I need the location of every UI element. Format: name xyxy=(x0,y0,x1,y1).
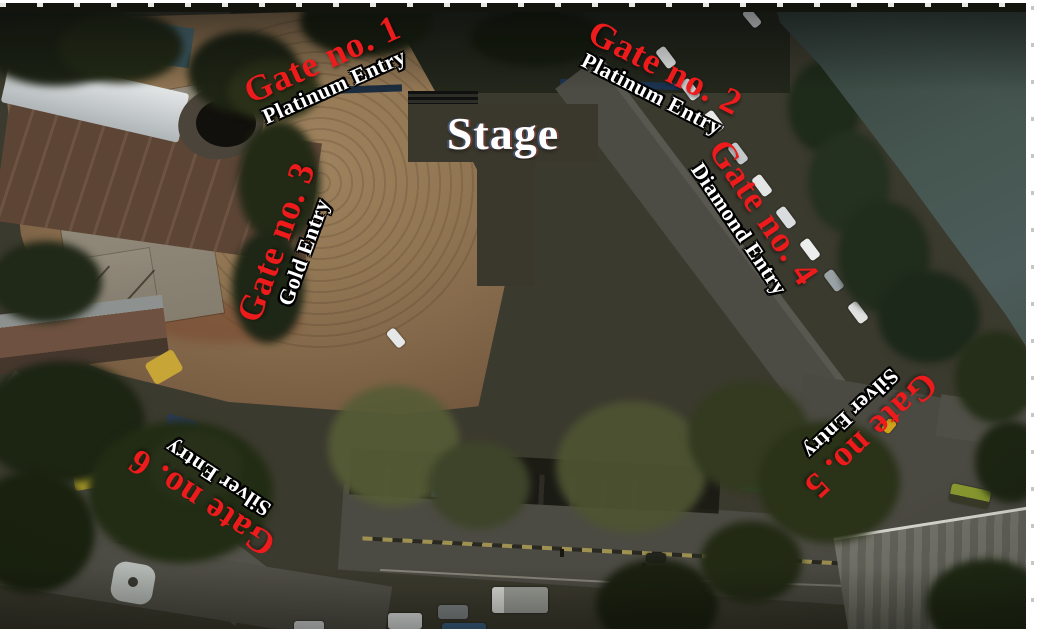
tree-canopy xyxy=(556,401,708,533)
photo-top-edge xyxy=(0,3,1026,12)
page-margin-bottom xyxy=(0,629,1038,638)
truck xyxy=(492,587,548,613)
stage-label: Stage xyxy=(447,107,559,160)
perforation-ticks xyxy=(0,3,1026,7)
car xyxy=(438,605,468,619)
motorbike xyxy=(560,549,564,557)
page-edge-dots xyxy=(1031,6,1034,632)
venue-map-page: Stage Gate no. 1 Platinum Entry Gate no.… xyxy=(0,0,1038,638)
tree-canopy xyxy=(58,11,183,83)
tree-canopy xyxy=(700,521,802,603)
stage-ramp-overlay xyxy=(477,160,535,286)
page-margin-top xyxy=(0,0,1038,3)
stage-overlay: Stage xyxy=(408,104,598,162)
car xyxy=(294,621,324,629)
tree-canopy xyxy=(428,441,530,529)
aerial-photo xyxy=(0,3,1026,629)
car xyxy=(388,613,422,629)
page-margin-right xyxy=(1026,0,1038,638)
gazebo-top xyxy=(128,577,138,587)
